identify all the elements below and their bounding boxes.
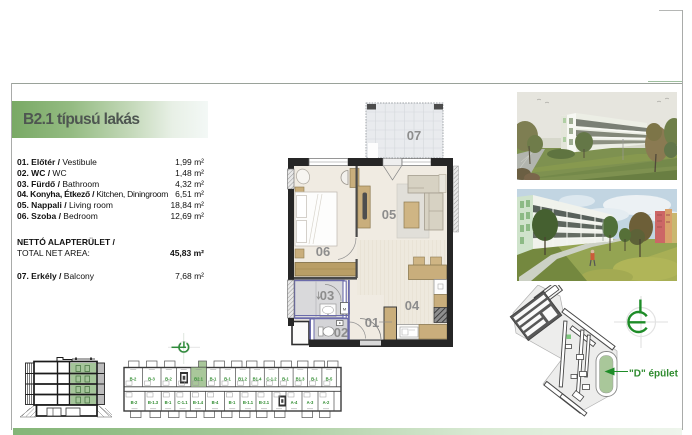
svg-text:B2.1: B2.1 <box>194 377 204 382</box>
svg-text:C-1.2: C-1.2 <box>266 377 277 382</box>
svg-text:C-1.1: C-1.1 <box>177 400 188 405</box>
svg-text:07: 07 <box>407 128 421 143</box>
svg-text:B-1.3: B-1.3 <box>148 400 159 405</box>
svg-text:B1.3: B1.3 <box>296 377 306 382</box>
svg-text:B-1.4: B-1.4 <box>193 400 204 405</box>
svg-text:A-4: A-4 <box>291 400 298 405</box>
svg-text:B-4: B-4 <box>212 400 219 405</box>
svg-text:B-1: B-1 <box>165 400 172 405</box>
svg-text:B-1.1: B-1.1 <box>243 400 254 405</box>
svg-text:B-2: B-2 <box>165 377 172 382</box>
svg-text:B1.2: B1.2 <box>238 377 248 382</box>
svg-text:B-2: B-2 <box>130 377 137 382</box>
svg-text:05: 05 <box>382 207 396 222</box>
svg-text:B-1: B-1 <box>311 377 318 382</box>
svg-text:M: M <box>343 307 346 312</box>
svg-text:B-1: B-1 <box>229 400 236 405</box>
svg-text:04: 04 <box>405 298 420 313</box>
svg-text:B-3: B-3 <box>148 377 155 382</box>
svg-text:B-2: B-2 <box>131 400 138 405</box>
svg-text:06: 06 <box>316 244 330 259</box>
svg-text:B-2.1: B-2.1 <box>259 400 270 405</box>
svg-text:B-1: B-1 <box>282 377 289 382</box>
svg-text:03: 03 <box>320 288 334 303</box>
svg-text:"D" épület: "D" épület <box>629 369 679 380</box>
svg-text:B-1: B-1 <box>224 377 231 382</box>
svg-text:B-1: B-1 <box>210 377 217 382</box>
svg-text:B-5: B-5 <box>326 377 333 382</box>
svg-text:A-3: A-3 <box>307 400 314 405</box>
svg-text:B1.4: B1.4 <box>253 377 263 382</box>
svg-text:A-2: A-2 <box>323 400 330 405</box>
